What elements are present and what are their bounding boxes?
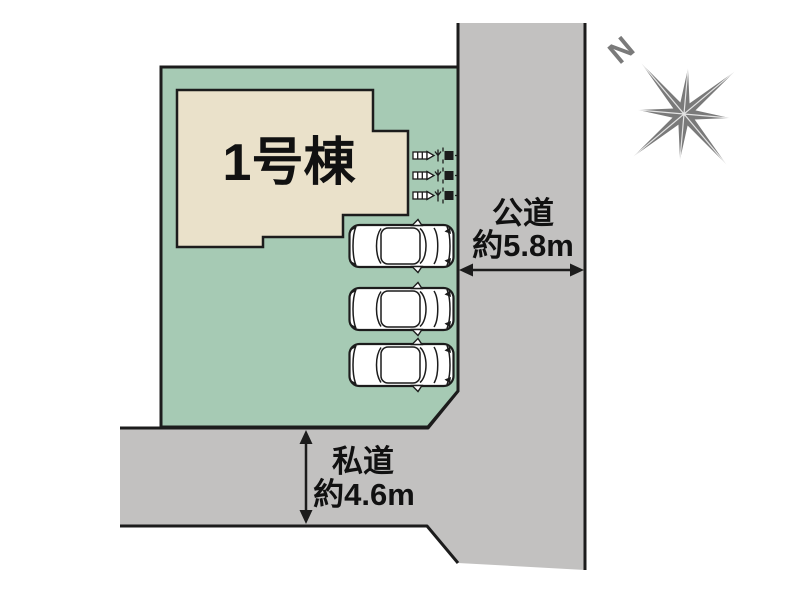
parking-cars <box>350 220 454 392</box>
private-road-name: 私道 <box>332 444 394 479</box>
public-road-width: 約5.8m <box>472 228 574 263</box>
road-border-bottom <box>120 526 458 563</box>
site-plan-canvas: 1号棟 公道 約5.8m 私道 約4.6m <box>0 0 800 601</box>
north-label: N <box>601 29 641 70</box>
compass: N <box>591 21 777 207</box>
private-road-width: 約4.6m <box>313 477 415 512</box>
car-icon <box>350 283 454 336</box>
car-icon <box>350 339 454 392</box>
building-label: 1号棟 <box>223 134 357 192</box>
public-road-name: 公道 <box>492 196 554 231</box>
car-icon <box>350 220 454 273</box>
site-plan: 1号棟 公道 約5.8m 私道 約4.6m <box>0 0 800 601</box>
